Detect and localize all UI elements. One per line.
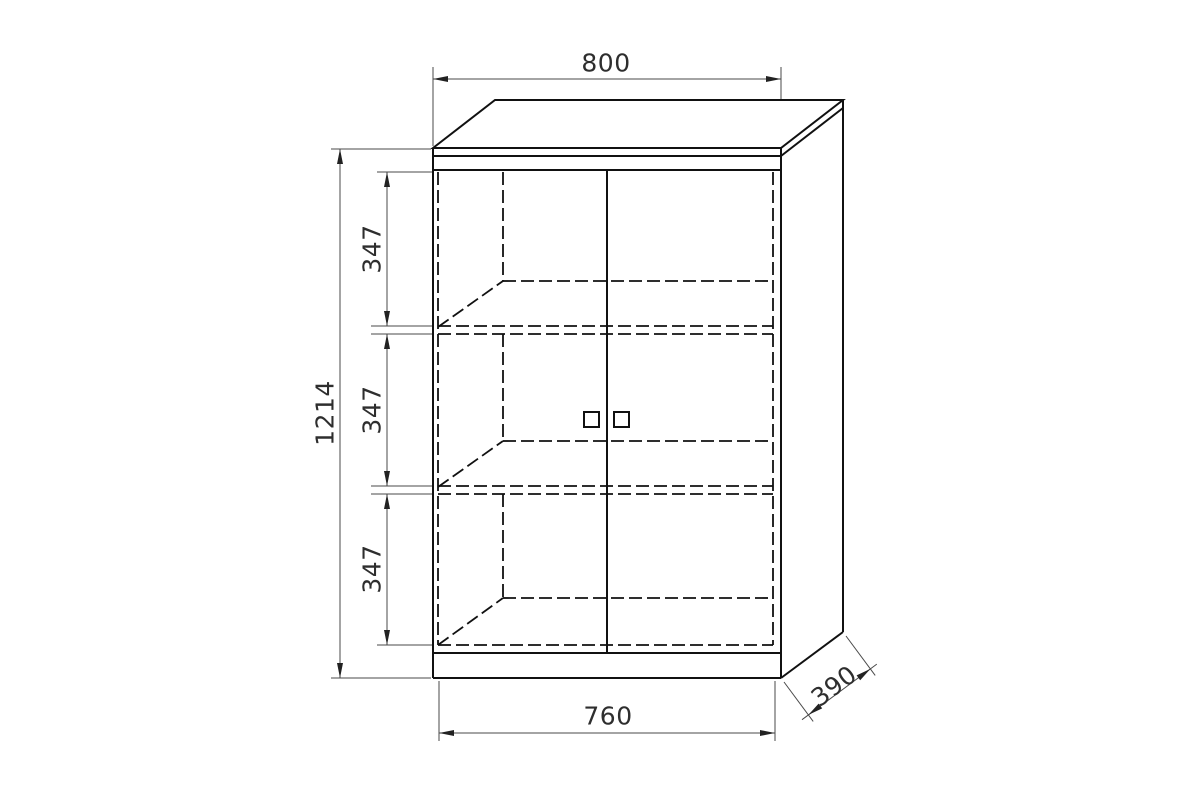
shelf-side-edge <box>438 441 503 487</box>
hidden-interior-lines <box>438 172 773 645</box>
dimension-arrows <box>337 76 870 736</box>
drawing-canvas: 800 1214 347 347 347 760 390 <box>0 0 1200 800</box>
floor-side-edge <box>438 598 503 645</box>
cabinet-solid-outline <box>433 100 843 678</box>
top-panel-face <box>433 100 843 148</box>
dimension-lines <box>331 67 877 741</box>
dim-section-bottom-label: 347 <box>358 544 387 593</box>
dim-section-middle-label: 347 <box>358 385 387 434</box>
door-handle-right <box>614 412 629 427</box>
cabinet-technical-drawing <box>0 0 1200 800</box>
shelf-side-edge <box>438 281 503 327</box>
dim-top-width-label: 800 <box>581 49 630 78</box>
dim-overall-height-label: 1214 <box>311 380 340 446</box>
dim-bottom-width-label: 760 <box>583 702 632 731</box>
dim-section-top-label: 347 <box>358 224 387 273</box>
door-handle-left <box>584 412 599 427</box>
